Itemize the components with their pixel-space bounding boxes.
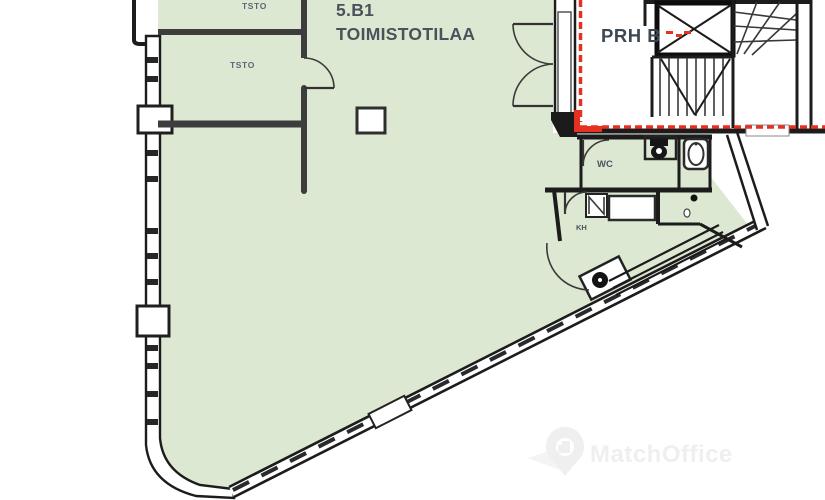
watermark: MatchOffice [527, 427, 733, 476]
stair-flight-lower [660, 58, 730, 116]
room-kh-label: KH [576, 223, 587, 232]
unit-type-label: TOIMISTOTILAA [336, 24, 475, 44]
floorplan-image: TSTO TSTO 5.B1 TOIMISTOTILAA PRH B WC KH… [0, 0, 825, 500]
facade-column-2 [137, 306, 169, 336]
watermark-brand: MatchOffice [590, 441, 733, 468]
lobby-door-panel [558, 12, 571, 118]
structural-column [357, 108, 385, 133]
stairwell [577, 0, 825, 136]
facade-column-1 [138, 106, 172, 133]
room-tsto-2-label: TSTO [230, 60, 255, 70]
stairwell-label: PRH B [601, 25, 661, 46]
room-tsto-1-label: TSTO [242, 1, 267, 11]
door-knob-dot [691, 195, 698, 202]
diagonal-column-post-center [598, 278, 602, 282]
toilet-icon [650, 139, 668, 159]
small-fixture [684, 209, 690, 217]
floorplan-canvas: TSTO TSTO 5.B1 TOIMISTOTILAA PRH B WC KH… [0, 0, 825, 500]
main-area [158, 0, 752, 492]
room-wc-label: WC [597, 159, 613, 170]
unit-id-label: 5.B1 [336, 0, 374, 20]
sink-icon [684, 139, 708, 169]
kh-counter [609, 196, 655, 220]
stair-winders-upper [734, 2, 796, 55]
